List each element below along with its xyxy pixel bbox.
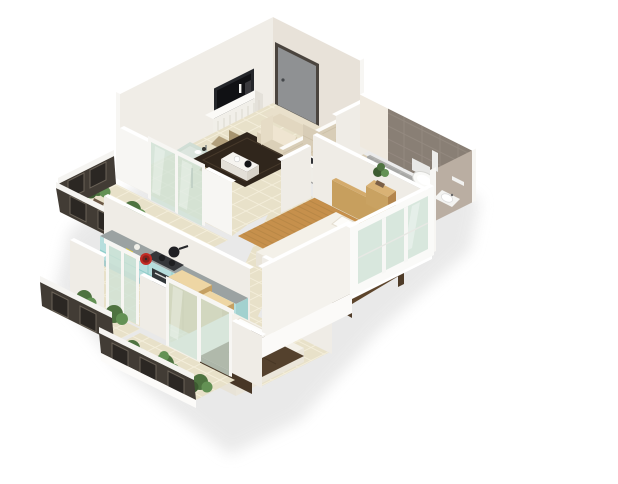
- isometric-scene: [0, 0, 618, 484]
- floor-plan-render: [0, 0, 618, 484]
- jar: [134, 244, 140, 250]
- bowl: [244, 160, 251, 167]
- red-pot: [140, 253, 152, 265]
- door-knob: [281, 78, 284, 81]
- bottle: [202, 147, 206, 151]
- plate: [195, 150, 202, 154]
- cup: [234, 156, 240, 162]
